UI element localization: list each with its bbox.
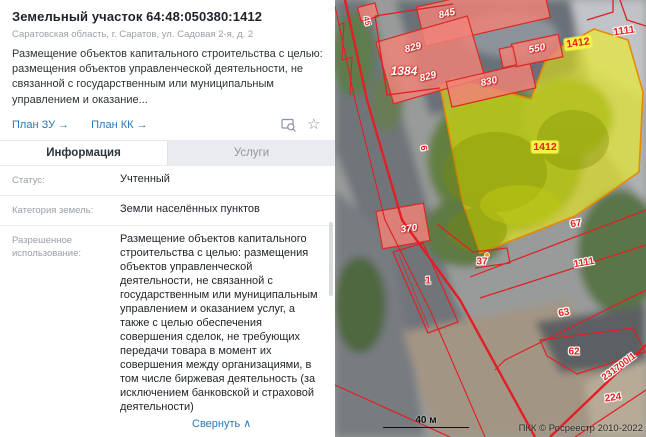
collapse-link[interactable]: Свернуть ∧ — [192, 418, 251, 432]
row-permitted-use: Разрешенное использование: Размещение об… — [0, 226, 335, 437]
row-value: Размещение объектов капитального строите… — [120, 233, 323, 432]
plan-kk-link[interactable]: План КК → — [91, 119, 147, 131]
page-title: Земельный участок 64:48:050380:1412 — [12, 9, 323, 24]
cadastral-map-app: Земельный участок 64:48:050380:1412 Сара… — [0, 0, 646, 437]
tab-information[interactable]: Информация — [0, 141, 167, 165]
row-value: Земли населённых пунктов — [120, 203, 323, 217]
row-label: Статус: — [12, 173, 120, 187]
row-land-category: Категория земель: Земли населённых пункт… — [0, 196, 335, 226]
row-value: Учтенный — [120, 173, 323, 187]
favorite-star-icon[interactable]: ☆ — [307, 117, 323, 133]
map-attribution: ПКК © Росреестр 2010-2022 — [519, 423, 643, 434]
scale-bar-line — [383, 427, 469, 428]
panel-tabs: Информация Услуги — [0, 140, 335, 166]
parcel-info-panel: Земельный участок 64:48:050380:1412 Сара… — [0, 0, 335, 437]
panel-header: Земельный участок 64:48:050380:1412 Сара… — [0, 0, 335, 140]
parcel-description: Размещение объектов капитального строите… — [12, 47, 323, 108]
plan-links-row: План ЗУ → План КК → ☆ — [12, 117, 323, 140]
preview-zoom-icon[interactable] — [281, 117, 297, 133]
point-marker — [485, 253, 490, 258]
row-label: Категория земель: — [12, 203, 120, 217]
scale-bar: 40 м — [383, 415, 469, 428]
header-icons: ☆ — [281, 117, 323, 133]
permitted-use-text: Размещение объектов капитального строите… — [120, 233, 318, 413]
map-viewport[interactable]: 8458291384829830550370141214121111456376… — [335, 0, 646, 437]
row-label: Разрешенное использование: — [12, 233, 120, 432]
row-status: Статус: Учтенный — [0, 166, 335, 196]
panel-scrollbar[interactable] — [329, 222, 333, 296]
scale-bar-label: 40 м — [383, 415, 469, 426]
parcel-address: Саратовская область, г. Саратов, ул. Сад… — [12, 29, 323, 40]
tab-services[interactable]: Услуги — [167, 141, 335, 165]
map-canvas[interactable] — [335, 0, 646, 437]
plan-zu-link[interactable]: План ЗУ → — [12, 119, 69, 131]
